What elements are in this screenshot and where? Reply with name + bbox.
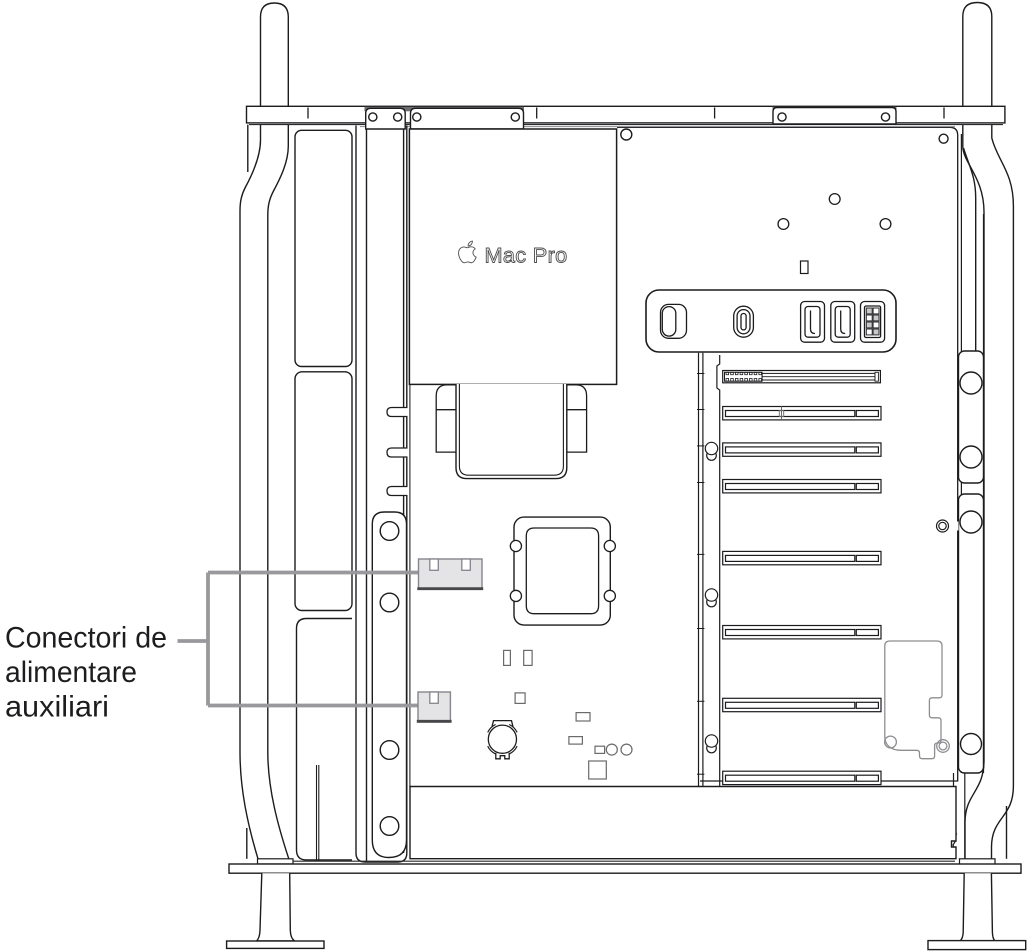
svg-text:Conectori de: Conectori de [5, 621, 167, 654]
svg-text:alimentare: alimentare [5, 656, 137, 689]
svg-text:auxiliari: auxiliari [5, 690, 109, 723]
svg-text:Mac Pro: Mac Pro [485, 243, 568, 267]
